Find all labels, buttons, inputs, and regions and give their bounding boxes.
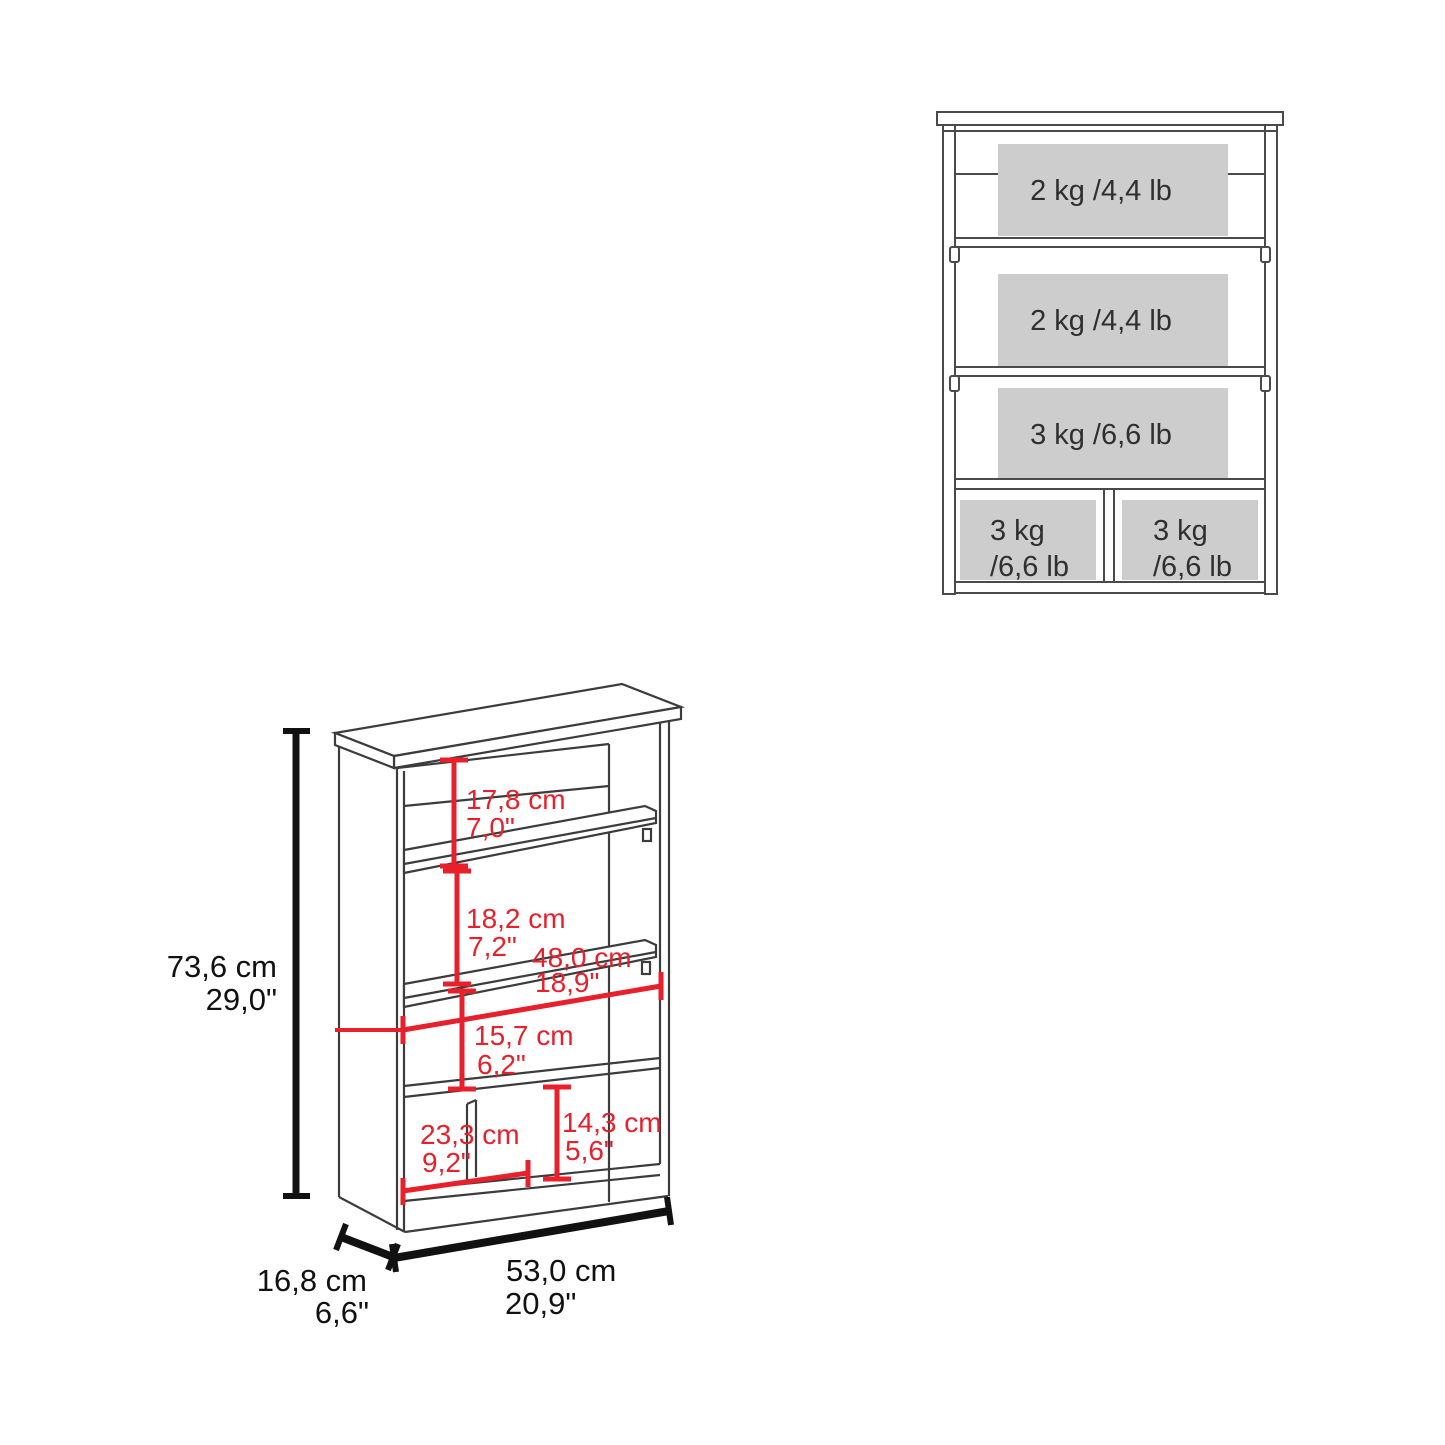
dimension-view-diagram: 17,8 cm 7,0" 18,2 cm 7,2" 48,0 cm 18,9" … — [167, 684, 681, 1330]
dimension-label-cm: 18,2 cm — [466, 903, 566, 934]
bottom-board — [955, 582, 1265, 593]
left-side-panel — [943, 124, 955, 594]
dimension-label-cm: 15,7 cm — [474, 1020, 574, 1051]
dimension-label-cm: 17,8 cm — [466, 784, 566, 815]
left-bottom-edge — [339, 1197, 405, 1232]
dimension-label-in: 29,0" — [206, 982, 277, 1017]
shelf-peg-icon — [1261, 247, 1270, 262]
capacity-label-cubby-left-2: /6,6 lb — [990, 551, 1069, 583]
adjustable-shelf-1-front-edge — [404, 818, 656, 864]
dimension-label-in: 7,0" — [466, 812, 515, 843]
capacity-label-cubby-left-1: 3 kg — [990, 515, 1045, 547]
dimension-label-cm: 14,3 cm — [562, 1107, 662, 1138]
dimension-cap — [667, 1197, 671, 1225]
dimension-label-in: 6,2" — [477, 1049, 526, 1080]
furniture-dimension-diagram: 2 kg /4,4 lb 2 kg /4,4 lb 3 kg /6,6 lb 3… — [0, 0, 1445, 1445]
shelf-peg-icon — [950, 247, 959, 262]
dimension-cap — [392, 1244, 396, 1272]
dimension-label-in: 20,9" — [505, 1286, 576, 1321]
cubby-divider-top — [467, 1100, 476, 1104]
dimension-label-cm: 23,3 cm — [420, 1119, 520, 1150]
right-side-panel — [1265, 124, 1277, 594]
capacity-label-shelf-1: 2 kg /4,4 lb — [1030, 175, 1172, 207]
capacity-label-shelf-2: 2 kg /4,4 lb — [1030, 305, 1172, 337]
dimension-line — [394, 1211, 669, 1258]
adjustable-shelf-1 — [404, 806, 656, 873]
shelf-peg-icon — [643, 829, 651, 841]
depth-dimension: 16,8 cm 6,6" — [257, 1224, 398, 1330]
dimension-label-in: 18,9" — [535, 967, 599, 998]
dimension-label-in: 9,2" — [422, 1147, 471, 1178]
fixed-shelf — [955, 479, 1265, 489]
shelf-peg-icon — [642, 962, 650, 974]
dimension-label-in: 6,6" — [315, 1295, 369, 1330]
top-board — [937, 112, 1283, 125]
cubby-width-dimension: 23,3 cm 9,2" — [403, 1119, 528, 1205]
dimension-line — [341, 1237, 393, 1257]
dimension-label-in: 7,2" — [468, 931, 517, 962]
front-view-diagram: 2 kg /4,4 lb 2 kg /4,4 lb 3 kg /6,6 lb 3… — [937, 112, 1283, 594]
bottom-board-edge — [404, 1175, 660, 1201]
dimension-label-cm: 16,8 cm — [257, 1263, 367, 1298]
capacity-label-shelf-3: 3 kg /6,6 lb — [1030, 419, 1172, 451]
shelf-peg-icon — [950, 376, 959, 391]
dimension-label-in: 5,6" — [565, 1135, 614, 1166]
shelf-peg-icon — [1261, 376, 1270, 391]
dimension-label-cm: 53,0 cm — [506, 1253, 616, 1288]
spec-sheet-page: 2 kg /4,4 lb 2 kg /4,4 lb 3 kg /6,6 lb 3… — [0, 0, 1445, 1445]
dimension-label-cm: 73,6 cm — [167, 949, 277, 984]
adjustable-shelf-2 — [955, 367, 1265, 376]
capacity-label-cubby-right-1: 3 kg — [1153, 515, 1208, 547]
cubby-divider — [1104, 489, 1114, 582]
adjustable-shelf-1 — [955, 238, 1265, 247]
overall-height-dimension: 73,6 cm 29,0" — [167, 731, 310, 1196]
capacity-label-cubby-right-2: /6,6 lb — [1153, 551, 1232, 583]
